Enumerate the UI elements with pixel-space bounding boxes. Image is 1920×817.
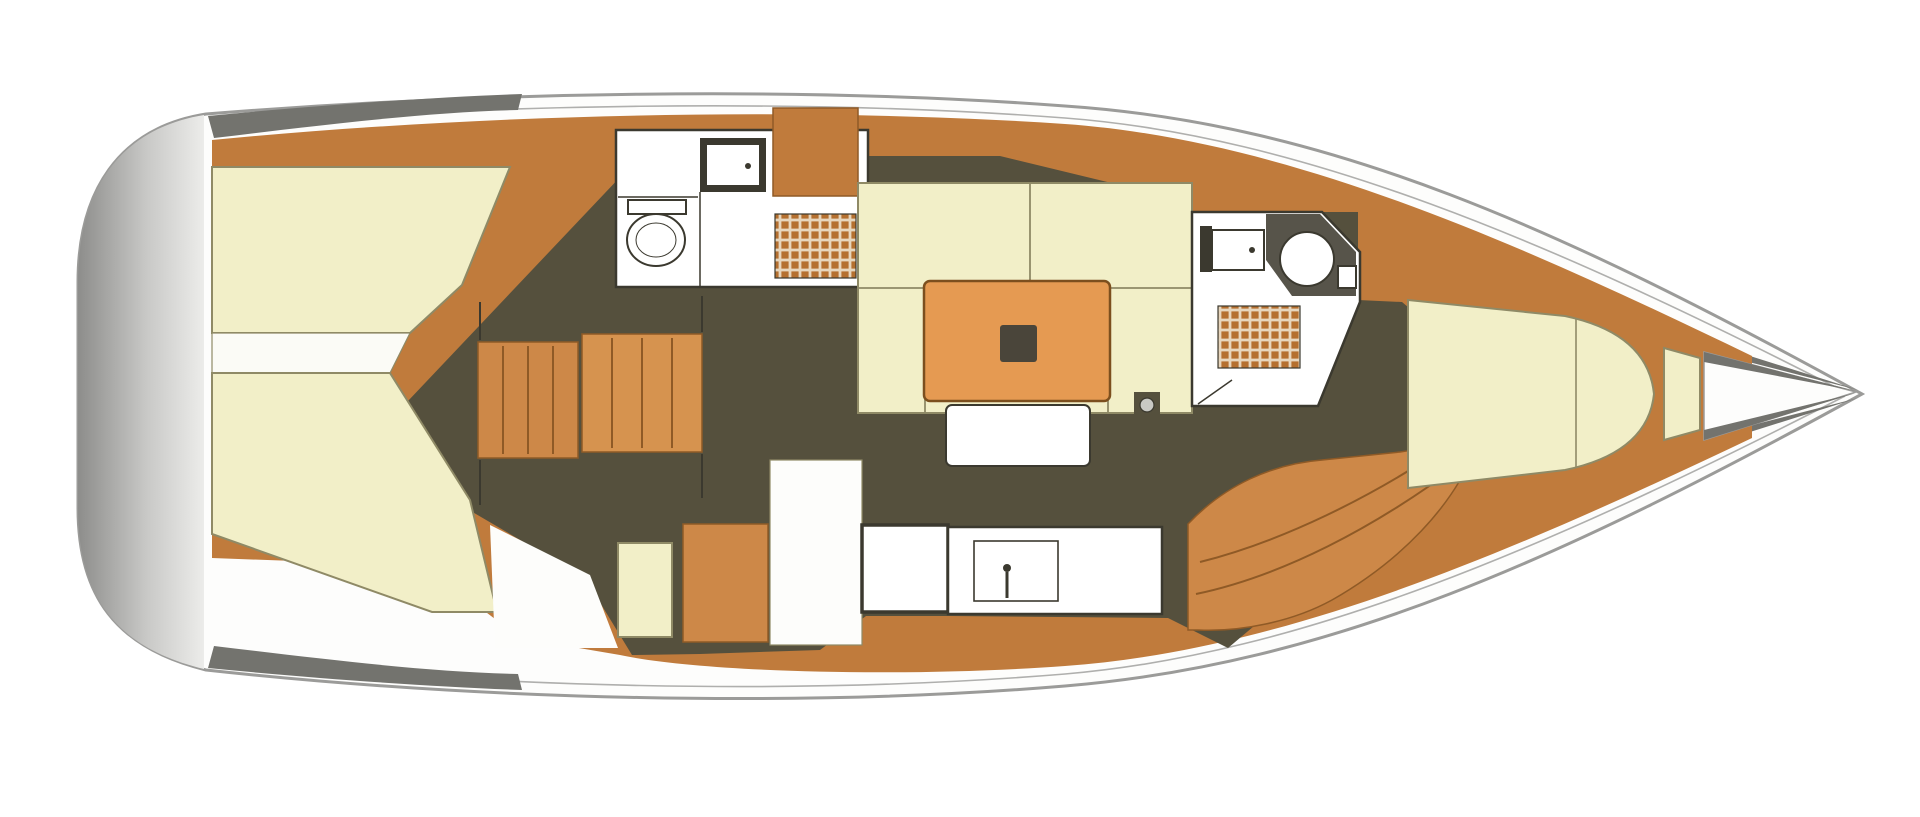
- aft-head-sink: [706, 144, 760, 186]
- saloon-bench: [946, 405, 1090, 466]
- galley-fridge: [862, 525, 948, 612]
- engine-compartment: [212, 333, 410, 373]
- aft-head-toilet-tank: [628, 200, 686, 214]
- aft-head-sink-faucet: [745, 163, 751, 169]
- galley-faucet: [1003, 564, 1011, 572]
- forward-head-sink: [1212, 230, 1264, 270]
- forward-head-sink-faucet: [1249, 247, 1255, 253]
- floor-plan-drawing: [0, 0, 1920, 817]
- forward-head-sink-frame: [1200, 226, 1212, 272]
- swim-platform: [78, 115, 204, 669]
- yacht-floor-plan: [0, 0, 1920, 817]
- bow-shelf: [1664, 348, 1700, 440]
- nav-door: [770, 460, 862, 645]
- aft-head-shower-grate: [775, 214, 856, 278]
- galley-cabinet: [683, 524, 768, 642]
- forward-head-toilet-panel: [1338, 266, 1356, 288]
- aft-head-locker: [773, 108, 858, 196]
- forward-head-toilet: [1280, 232, 1334, 286]
- forward-head-shower-grate: [1218, 306, 1300, 368]
- aft-head: [616, 108, 868, 287]
- saloon-table-inset: [1000, 325, 1037, 362]
- mast-post: [1140, 398, 1154, 412]
- galley-seat: [618, 543, 672, 637]
